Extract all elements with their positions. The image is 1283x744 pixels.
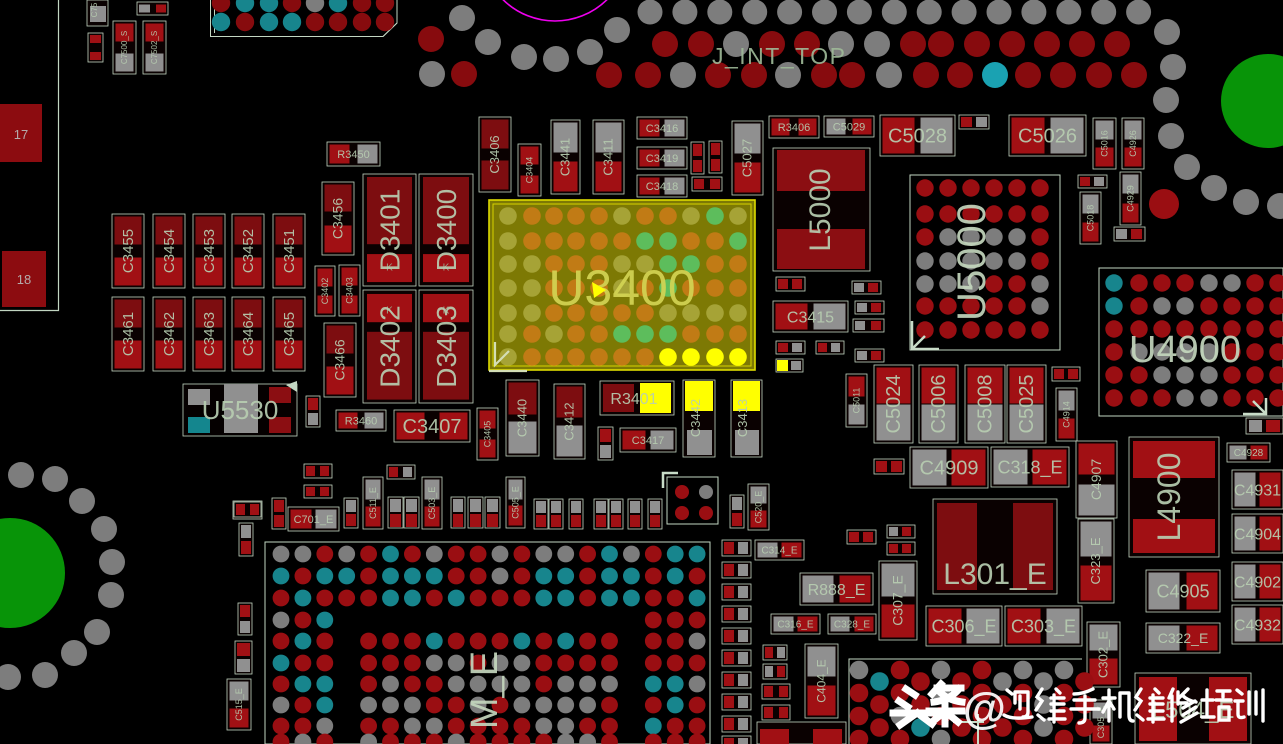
svg-text:C5027: C5027 bbox=[740, 139, 755, 177]
svg-text:L301_E: L301_E bbox=[943, 558, 1046, 591]
svg-text:C4904: C4904 bbox=[1234, 526, 1281, 543]
svg-text:C4907: C4907 bbox=[1088, 459, 1104, 500]
svg-text:@: @ bbox=[963, 684, 1006, 733]
svg-text:D3400: D3400 bbox=[431, 189, 462, 272]
svg-text:C5026: C5026 bbox=[1018, 126, 1077, 148]
svg-text:M_E: M_E bbox=[464, 651, 506, 729]
svg-text:C3403: C3403 bbox=[344, 277, 354, 304]
svg-text:R888_E: R888_E bbox=[808, 582, 866, 599]
svg-text:C3442: C3442 bbox=[688, 399, 703, 437]
svg-text:C4914: C4914 bbox=[1061, 401, 1071, 428]
svg-text:17: 17 bbox=[14, 127, 28, 142]
svg-text:C316_E: C316_E bbox=[777, 620, 813, 631]
svg-text:C3415: C3415 bbox=[787, 309, 834, 326]
svg-text:C3463: C3463 bbox=[201, 312, 218, 356]
svg-text:C3464: C3464 bbox=[240, 312, 257, 356]
svg-text:C3453: C3453 bbox=[201, 229, 218, 273]
svg-text:C404_E: C404_E bbox=[814, 659, 828, 702]
svg-text:C3406: C3406 bbox=[487, 135, 502, 173]
svg-text:C4926: C4926 bbox=[1128, 130, 1138, 157]
svg-text:C3402: C3402 bbox=[320, 278, 330, 305]
svg-text:C4928: C4928 bbox=[1234, 448, 1264, 459]
svg-text:C307_E: C307_E bbox=[889, 575, 905, 626]
svg-text:C5011: C5011 bbox=[851, 388, 861, 414]
svg-text:C5016: C5016 bbox=[1099, 130, 1109, 157]
svg-text:R3460: R3460 bbox=[345, 415, 377, 427]
svg-text:C3441: C3441 bbox=[558, 138, 573, 176]
svg-text:C505_E: C505_E bbox=[510, 486, 520, 519]
svg-text:C3451: C3451 bbox=[281, 229, 298, 273]
svg-text:C5018: C5018 bbox=[1085, 205, 1095, 232]
svg-text:C3404: C3404 bbox=[524, 157, 534, 184]
svg-text:L4900: L4900 bbox=[1151, 453, 1187, 542]
svg-text:C515_E: C515_E bbox=[234, 688, 244, 721]
svg-text:C3466: C3466 bbox=[331, 339, 347, 380]
svg-text:C5028: C5028 bbox=[888, 126, 947, 148]
svg-text:C3462: C3462 bbox=[161, 312, 178, 356]
svg-text:C7500_S: C7500_S bbox=[120, 31, 129, 64]
svg-text:C314_E: C314_E bbox=[761, 546, 797, 557]
svg-text:U4900: U4900 bbox=[1129, 329, 1241, 371]
svg-text:C3455: C3455 bbox=[120, 229, 137, 273]
svg-text:C520_E: C520_E bbox=[753, 491, 763, 524]
svg-text:C3405: C3405 bbox=[482, 421, 492, 448]
svg-text:C328_E: C328_E bbox=[834, 620, 870, 631]
svg-text:C3419: C3419 bbox=[646, 153, 678, 165]
svg-text:U3400: U3400 bbox=[548, 260, 695, 316]
svg-text:C3440: C3440 bbox=[515, 399, 530, 437]
svg-text:C5006: C5006 bbox=[928, 375, 950, 434]
svg-text:C3416: C3416 bbox=[646, 123, 678, 135]
svg-text:C511_E: C511_E bbox=[368, 487, 378, 519]
svg-text:C318_E: C318_E bbox=[997, 457, 1062, 478]
svg-text:C3454: C3454 bbox=[161, 229, 178, 273]
svg-text:C5024: C5024 bbox=[883, 375, 905, 434]
svg-text:C3413: C3413 bbox=[735, 399, 750, 437]
svg-text:R3406: R3406 bbox=[778, 122, 810, 134]
svg-text:C3456: C3456 bbox=[329, 198, 345, 239]
svg-text:D3401: D3401 bbox=[375, 189, 406, 272]
svg-text:U5000: U5000 bbox=[950, 203, 994, 321]
svg-text:C3407: C3407 bbox=[403, 416, 462, 438]
svg-text:C4905: C4905 bbox=[1156, 581, 1209, 601]
svg-text:C7502_S: C7502_S bbox=[150, 31, 159, 64]
svg-text:C701_E: C701_E bbox=[294, 514, 334, 526]
svg-text:C4931: C4931 bbox=[1234, 482, 1281, 499]
svg-text:C4929: C4929 bbox=[1125, 185, 1135, 212]
svg-text:C4932: C4932 bbox=[1234, 617, 1281, 634]
svg-text:D3403: D3403 bbox=[431, 305, 462, 388]
svg-text:R3401: R3401 bbox=[610, 391, 657, 408]
svg-text:C3412: C3412 bbox=[562, 402, 577, 440]
svg-text:C322_E: C322_E bbox=[1158, 630, 1209, 646]
svg-text:J_INT_TOP: J_INT_TOP bbox=[712, 43, 847, 69]
svg-text:C302_E: C302_E bbox=[1096, 631, 1111, 678]
svg-text:C3411: C3411 bbox=[601, 138, 616, 175]
svg-text:C5025: C5025 bbox=[1016, 375, 1038, 434]
svg-text:C5029: C5029 bbox=[833, 121, 865, 133]
svg-text:C303_E: C303_E bbox=[1011, 616, 1076, 637]
svg-text:18: 18 bbox=[17, 272, 31, 287]
svg-text:C323_E: C323_E bbox=[1088, 537, 1103, 584]
svg-text:L5000: L5000 bbox=[804, 168, 837, 251]
svg-text:C503_E: C503_E bbox=[427, 487, 437, 520]
svg-text:C3465: C3465 bbox=[281, 312, 298, 356]
svg-text:C5008: C5008 bbox=[974, 375, 996, 434]
svg-text:R3450: R3450 bbox=[337, 149, 369, 161]
svg-text:C4902: C4902 bbox=[1234, 574, 1281, 591]
svg-text:C3417: C3417 bbox=[632, 435, 664, 447]
svg-text:D3402: D3402 bbox=[375, 305, 406, 388]
svg-text:C306_E: C306_E bbox=[931, 616, 996, 637]
svg-text:C3452: C3452 bbox=[240, 229, 257, 273]
svg-text:U5530: U5530 bbox=[202, 395, 279, 425]
svg-text:C3418: C3418 bbox=[646, 181, 678, 193]
svg-text:C4909: C4909 bbox=[920, 458, 979, 480]
svg-text:C75: C75 bbox=[90, 2, 99, 17]
svg-text:C3461: C3461 bbox=[120, 312, 137, 356]
